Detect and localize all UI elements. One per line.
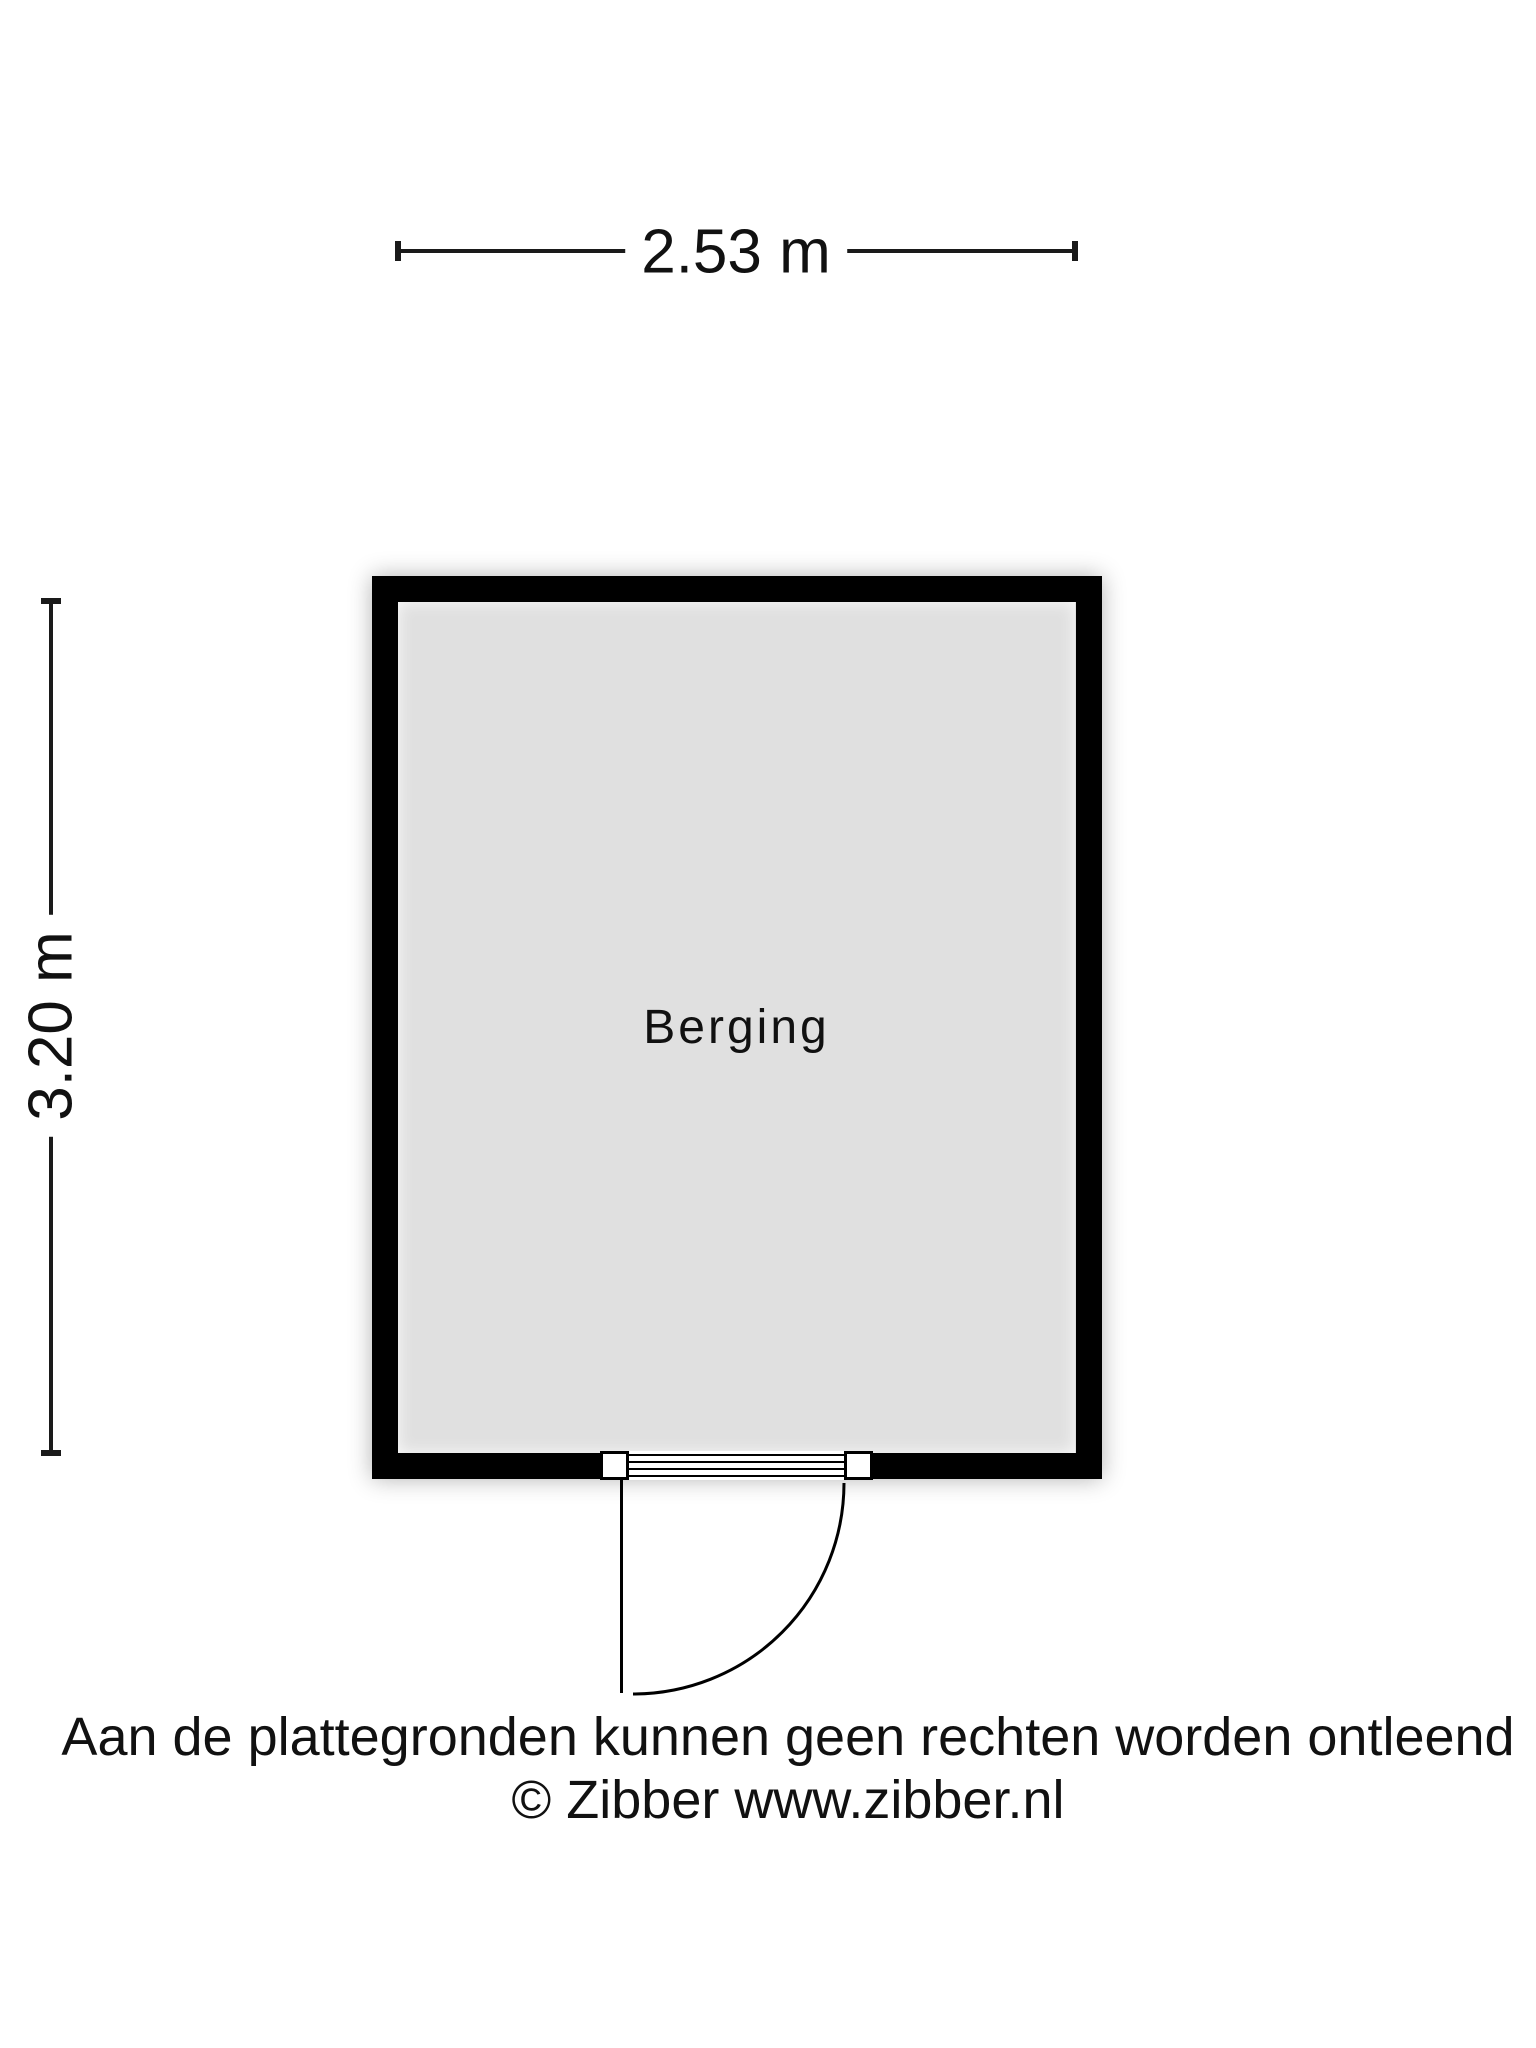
door-threshold-line [628,1454,845,1456]
height-dimension-tick-top [41,598,61,604]
room-label: Berging [643,1000,829,1055]
height-dimension-tick-bottom [41,1450,61,1456]
footer-disclaimer: Aan de plattegronden kunnen geen rechten… [40,1706,1536,1769]
door-threshold [628,1451,845,1480]
width-dimension-tick-left [395,241,401,261]
width-dimension-tick-right [1072,241,1078,261]
width-dimension-label: 2.53 m [625,217,847,288]
footer: Aan de plattegronden kunnen geen rechten… [40,1706,1536,1832]
room-label-box: Berging [398,602,1075,1453]
height-dimension-label: 3.20 m [16,915,87,1137]
footer-copyright: © Zibber www.zibber.nl [40,1769,1536,1832]
door-jamb-right [844,1451,873,1480]
door-swing-arc [633,1483,844,1694]
door-threshold-line [628,1468,845,1470]
door-jamb-left [600,1451,629,1480]
door-threshold-line [628,1461,845,1463]
floorplan-page: 2.53 m 3.20 m Berging Aan de plattegrond… [0,0,1536,2048]
door-threshold-line [628,1475,845,1477]
